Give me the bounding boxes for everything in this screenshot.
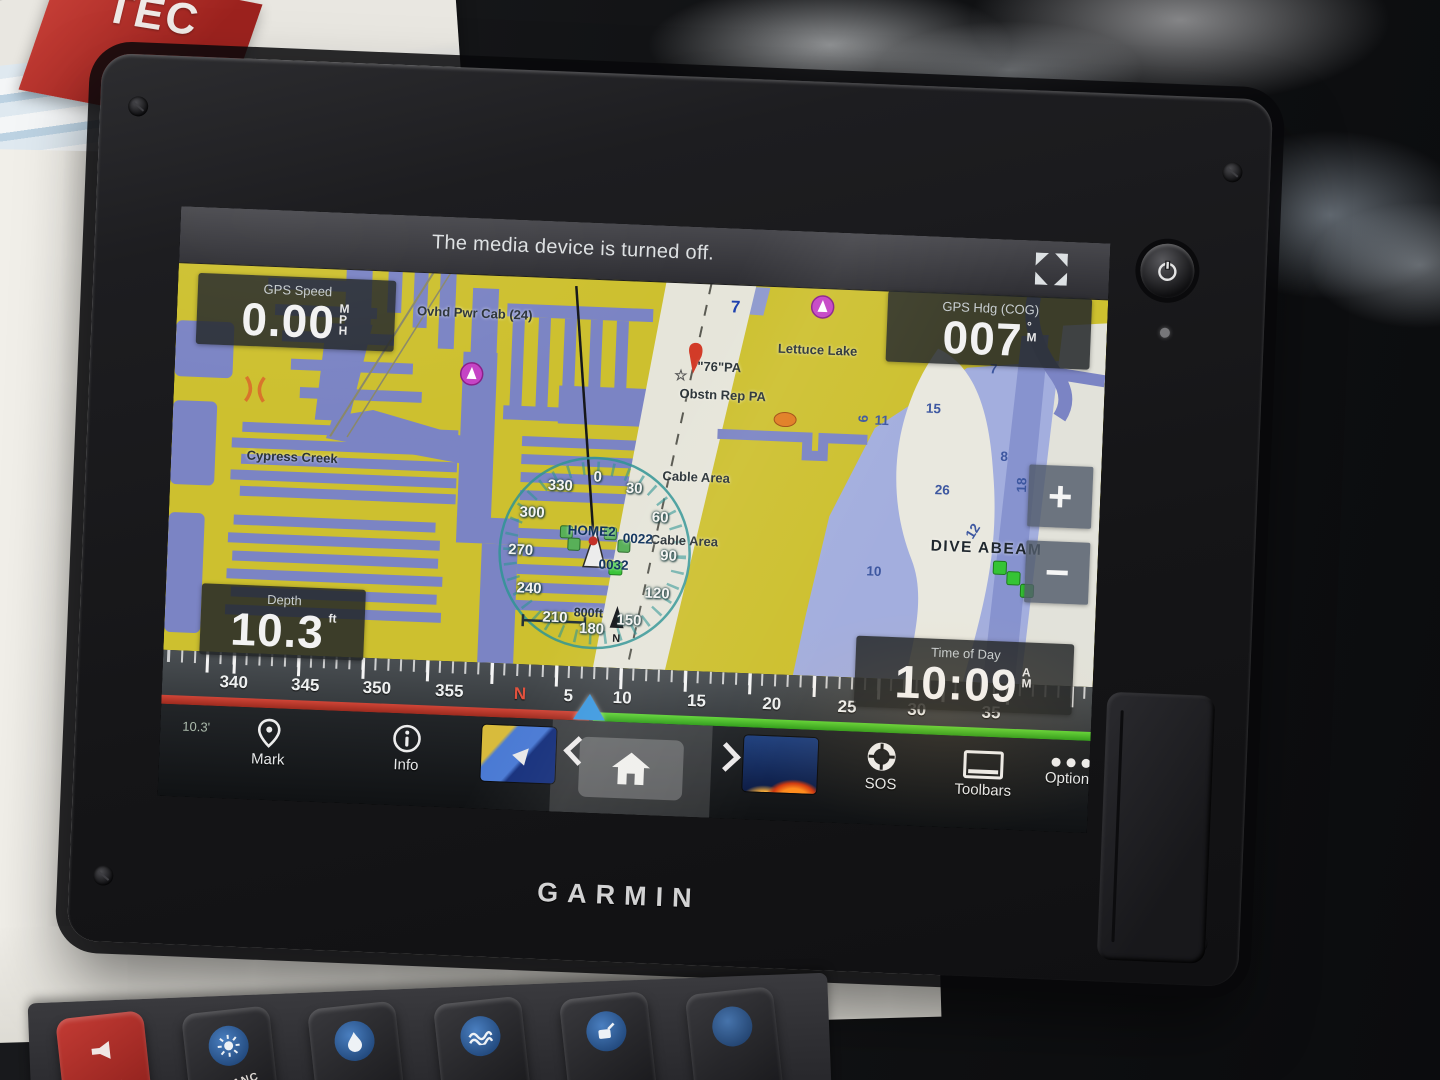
zoom-out-button[interactable]: −: [1024, 540, 1090, 605]
tape-mark: 350: [362, 678, 391, 699]
sos-lifering-icon: [865, 740, 898, 773]
tape-mark: N: [513, 684, 526, 704]
map-label: 7: [730, 298, 740, 318]
accessory-switch[interactable]: [685, 986, 789, 1080]
map-label: Cable Area: [650, 532, 718, 550]
nav-anc-lights-switch[interactable]: NAV/ANC LIGHTS: [181, 1005, 285, 1080]
chevron-right-icon[interactable]: [711, 742, 741, 772]
gps-speed-box[interactable]: GPS Speed 0.00 MPH: [196, 273, 397, 352]
bezel-screw: [93, 865, 114, 886]
info-icon: [391, 723, 422, 754]
bilge-pump-switch[interactable]: [559, 991, 663, 1080]
tape-mark: 10: [612, 688, 632, 709]
fullscreen-icon[interactable]: [1035, 252, 1068, 285]
map-label: Obstn Rep PA: [679, 385, 766, 403]
info-button[interactable]: Info: [391, 723, 423, 774]
power-icon: [1155, 258, 1180, 283]
depth-sounding: 10: [866, 564, 882, 580]
brand-logo: GARMIN: [537, 877, 702, 915]
depth-sounding: 15: [926, 400, 942, 416]
tape-mark: 340: [219, 672, 248, 693]
chart-page-thumbnail[interactable]: [480, 725, 556, 784]
map-label: Lettuce Lake: [778, 341, 858, 359]
options-dots-icon: [1052, 758, 1091, 769]
livewell-icon: [458, 1014, 502, 1058]
tape-mark: 20: [762, 694, 782, 715]
time-of-day-box[interactable]: Time of Day 10:09 AM: [854, 636, 1075, 716]
map-label: Cable Area: [662, 468, 730, 486]
livewell-switch[interactable]: [433, 996, 537, 1080]
bezel-screw: [128, 96, 149, 117]
tape-mark: 345: [291, 675, 320, 696]
washdown-switch[interactable]: [307, 1000, 411, 1080]
map-label: Ovhd Pwr Cab (24): [417, 303, 533, 323]
tape-mark: 5: [563, 686, 573, 706]
banner-message: The media device is turned off.: [431, 231, 714, 265]
sign-text: TEC: [104, 0, 199, 47]
depth-sounding: 18: [1014, 477, 1030, 493]
time-unit: AM: [1021, 667, 1035, 690]
washdown-icon: [333, 1019, 377, 1063]
horn-icon: [81, 1029, 125, 1073]
home-button[interactable]: [578, 737, 684, 801]
gps-heading-box[interactable]: GPS Hdg (COG) 007 °M: [886, 291, 1093, 370]
home-icon: [610, 751, 651, 787]
tape-mark: 15: [687, 691, 707, 712]
map-label: "76"PA: [697, 359, 741, 376]
depth-sounding: 8: [1000, 449, 1008, 464]
options-button[interactable]: Options: [1045, 747, 1098, 788]
map-label: Cypress Creek: [246, 448, 338, 467]
depth-unit: ft: [328, 613, 336, 624]
waypoint-label: 0022: [623, 531, 654, 547]
depth-overlay-text: 10.3': [182, 719, 210, 735]
gps-heading-unit: °M: [1026, 321, 1037, 343]
depth-sounding: 26: [935, 482, 951, 498]
gps-heading-value: 007: [942, 314, 1024, 363]
waypoint-label: 0032: [598, 557, 629, 573]
depth-sounding: 6: [856, 414, 871, 422]
heading-pointer-icon: [573, 693, 606, 720]
toolbars-button[interactable]: Toolbars: [954, 746, 1013, 800]
depth-sounding: 11: [874, 413, 889, 429]
toolbars-icon: [963, 750, 1004, 780]
depth-value: 10.3: [230, 605, 325, 655]
accessory-icon: [710, 1004, 754, 1048]
bilge-pump-icon: [584, 1009, 628, 1053]
nav-light-icon: [207, 1024, 251, 1068]
bezel-screw: [1222, 162, 1243, 183]
sonar-page-thumbnail[interactable]: [742, 735, 818, 794]
sos-button[interactable]: SOS: [864, 740, 898, 793]
mark-button[interactable]: Mark: [251, 717, 286, 768]
card-reader-door[interactable]: [1097, 692, 1216, 964]
horn-switch[interactable]: HORN: [55, 1010, 159, 1080]
power-button[interactable]: [1139, 243, 1195, 299]
gps-speed-unit: MPH: [338, 304, 352, 337]
gps-speed-value: 0.00: [241, 296, 336, 346]
zoom-in-button[interactable]: +: [1027, 464, 1093, 529]
chartplotter-screen: The media device is turned off.: [158, 206, 1111, 833]
garmin-chartplotter: GARMIN The media device is turned off.: [67, 53, 1274, 987]
depth-box[interactable]: Depth 10.3 ft: [199, 583, 366, 661]
time-value: 10:09: [894, 658, 1018, 709]
waypoint-label: HOME2: [567, 523, 616, 540]
tape-mark: 355: [435, 681, 464, 702]
power-led: [1160, 328, 1170, 338]
map-label: 800ft: [574, 605, 604, 620]
mark-pin-icon: [255, 718, 282, 749]
boat-console-photo: TEC GARMIN The media device is turned of…: [0, 0, 1440, 1080]
